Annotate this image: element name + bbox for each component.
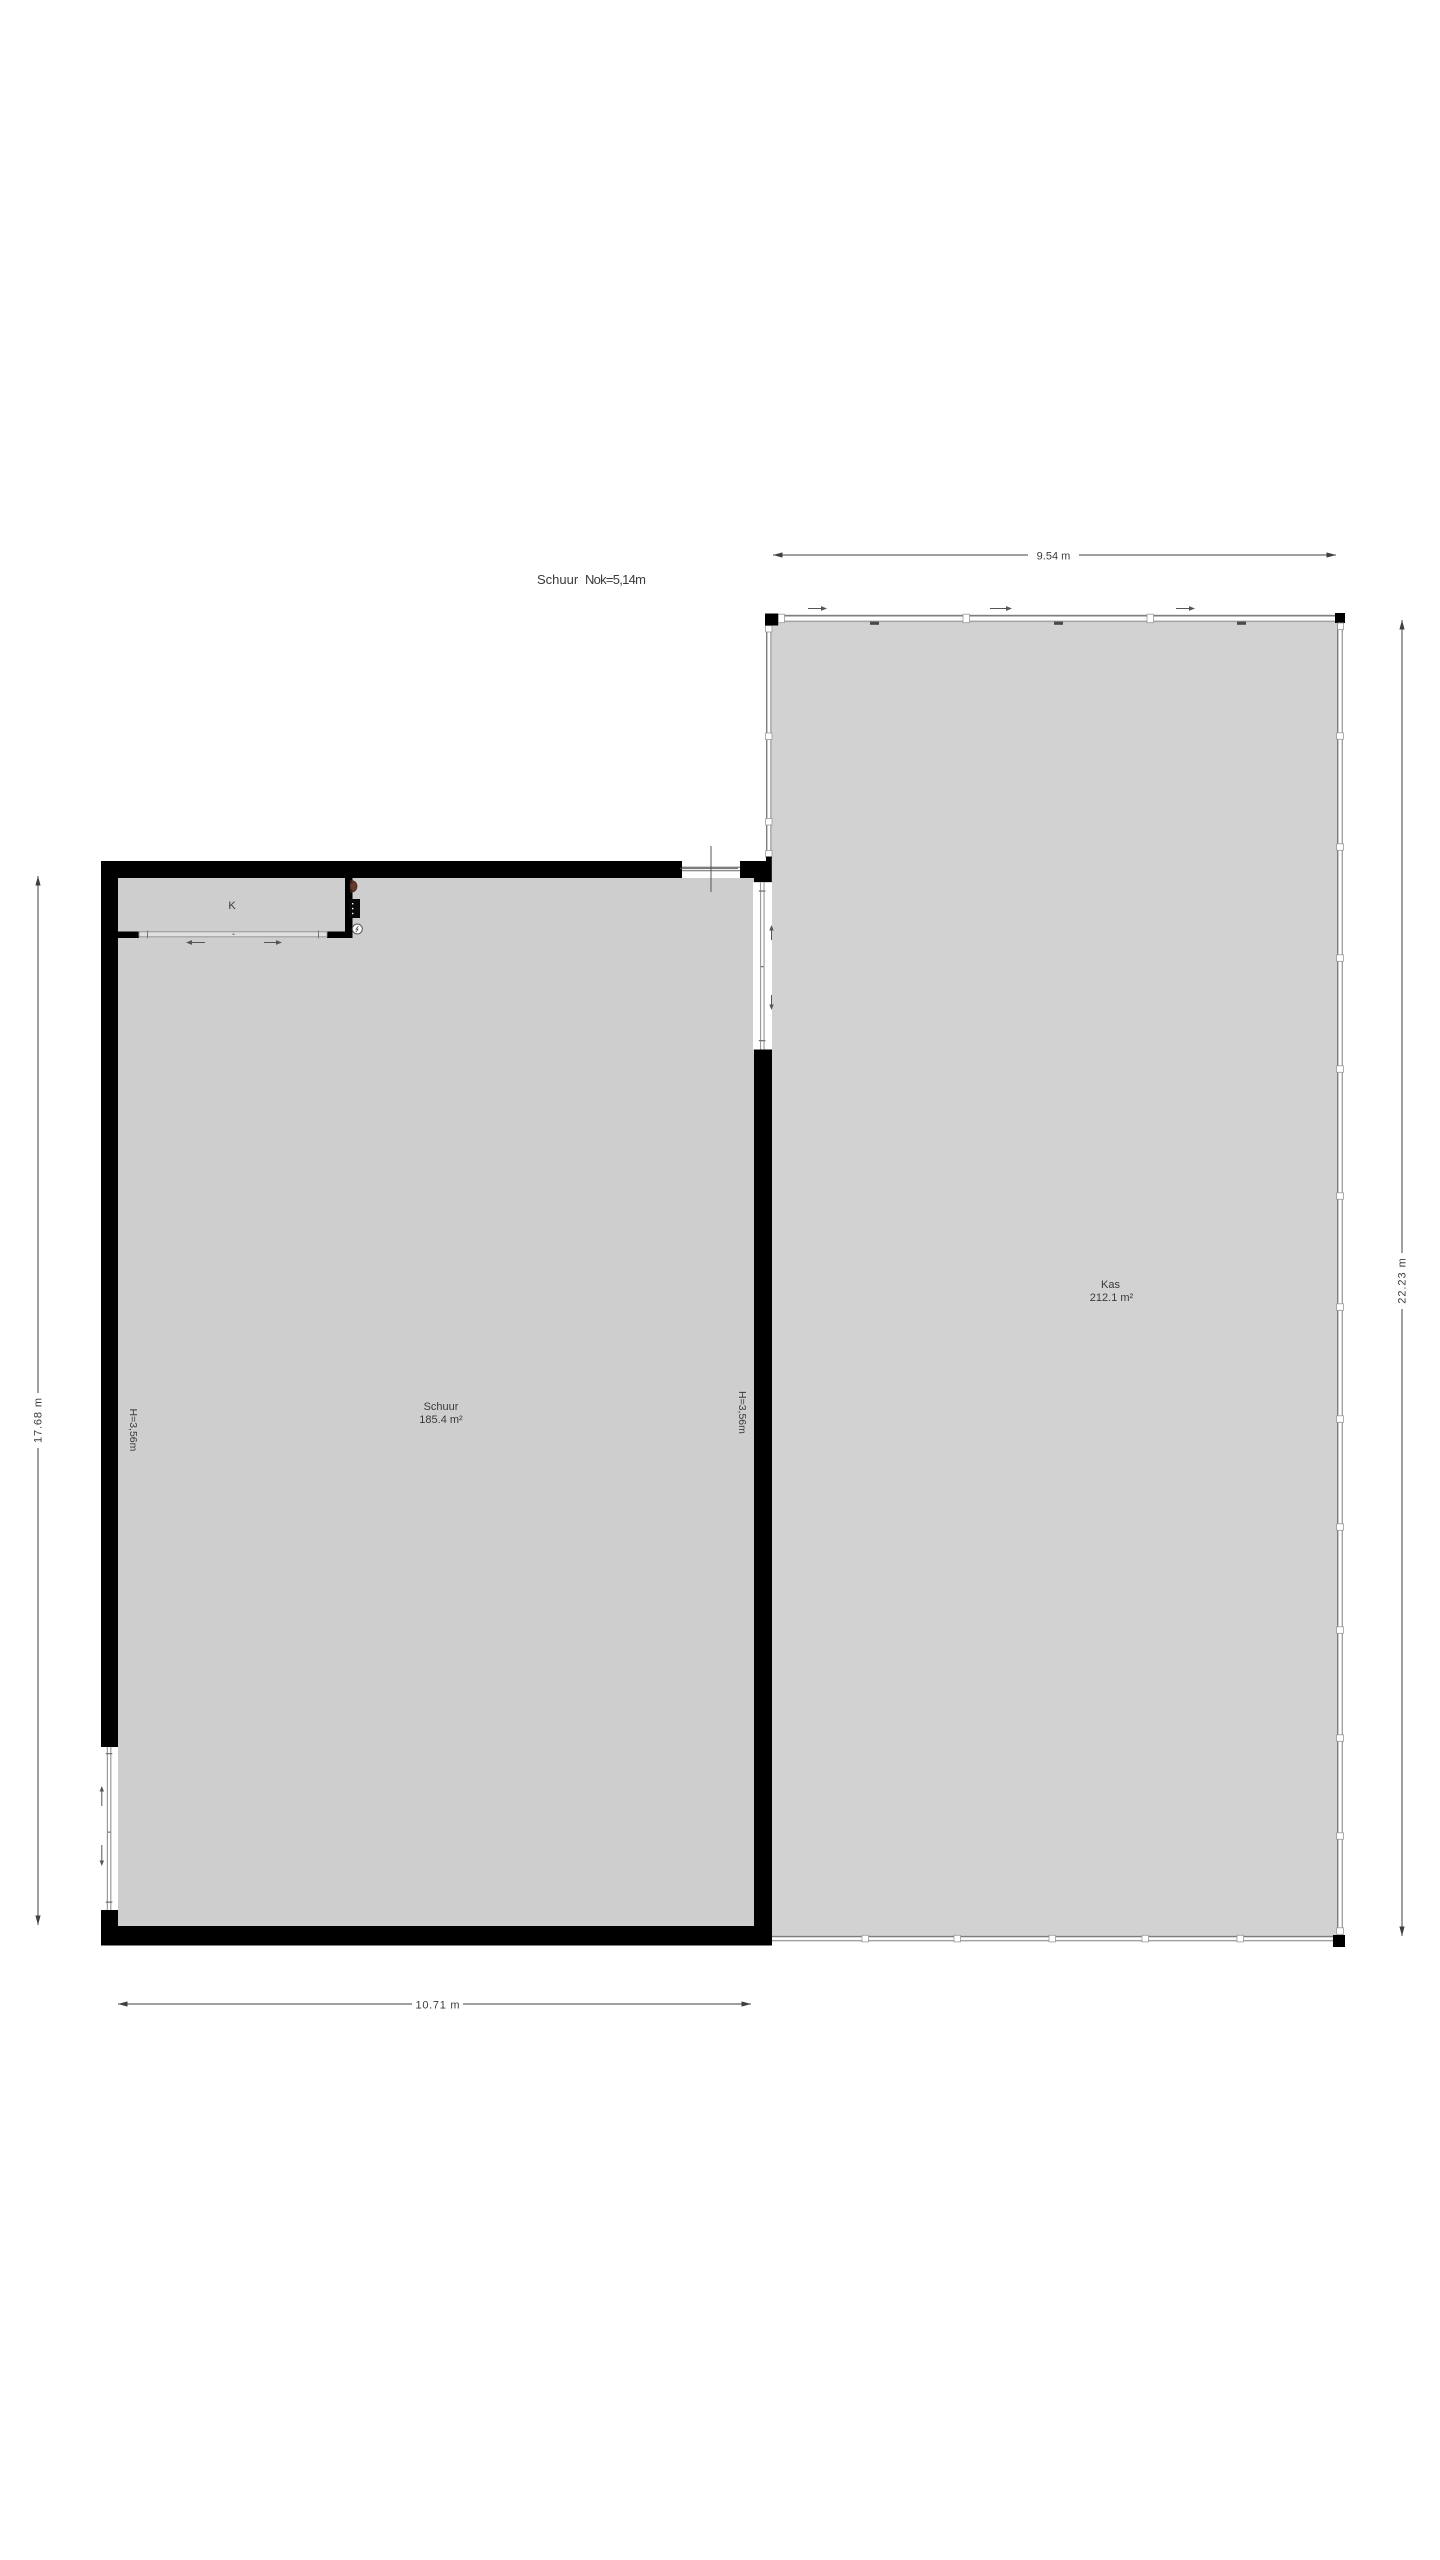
svg-text:9.54 m: 9.54 m	[1037, 551, 1071, 563]
svg-text:K: K	[228, 900, 236, 912]
svg-text:10.71 m: 10.71 m	[416, 2000, 460, 2012]
svg-text:Schuur: Schuur	[537, 572, 579, 587]
svg-text:Nok=5,14m: Nok=5,14m	[585, 572, 646, 587]
svg-text:Schuur: Schuur	[424, 1401, 459, 1413]
svg-text:212.1 m²: 212.1 m²	[1090, 1292, 1134, 1304]
svg-text:H=3,56m: H=3,56m	[127, 1409, 139, 1452]
svg-text:17.68 m: 17.68 m	[33, 1398, 45, 1443]
svg-text:Kas: Kas	[1101, 1279, 1120, 1291]
svg-text:22.23 m: 22.23 m	[1397, 1258, 1409, 1304]
svg-text:H=3,56m: H=3,56m	[736, 1391, 748, 1434]
svg-text:185.4 m²: 185.4 m²	[419, 1414, 463, 1426]
